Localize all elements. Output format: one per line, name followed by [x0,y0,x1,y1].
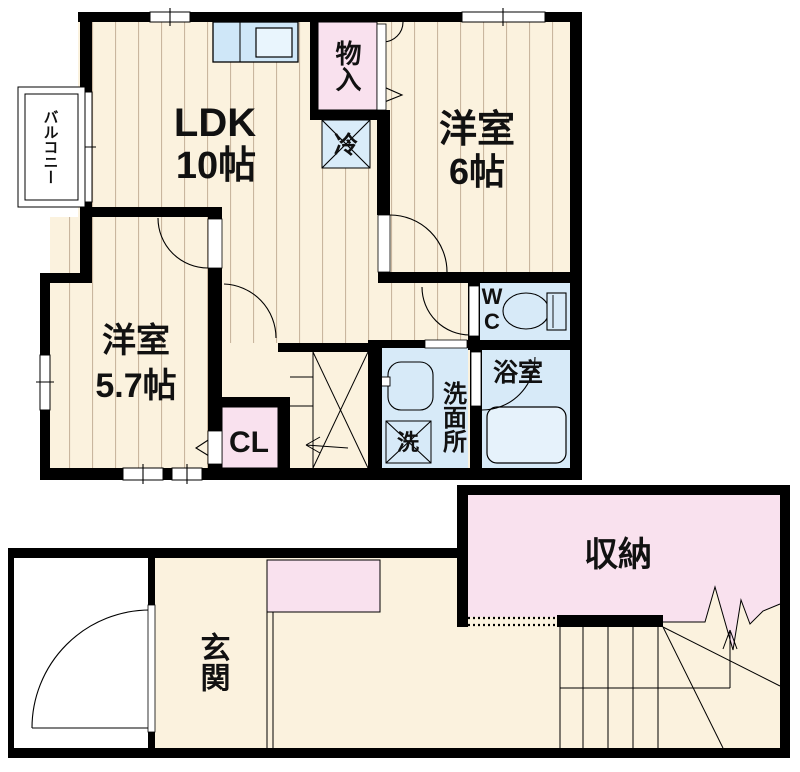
floorplan: LDK 10帖 物入 冷 洋室 6帖 洋室 5.7帖 CL WC 洗面所 洗 浴… [0,0,800,772]
door-bedroom6 [378,215,390,272]
entrance-door-opening [148,605,155,732]
label-wc: WC [480,284,505,334]
entrance-porch [14,558,148,748]
bathtub [487,407,566,463]
first-floor: 玄関 収納 [8,485,790,758]
floorplan-svg: LDK 10帖 物入 冷 洋室 6帖 洋室 5.7帖 CL WC 洗面所 洗 浴… [0,0,800,772]
door-cl [208,431,222,464]
label-bedroom57-size: 5.7帖 [95,367,176,405]
label-bedroom6: 洋室 [439,108,515,151]
label-balcony: バルコニー [42,110,59,185]
door-wc [469,286,479,336]
label-entrance: 玄関 [196,631,230,692]
label-bedroom57: 洋室 [102,321,170,360]
label-ldk: LDK [174,101,256,145]
second-floor: LDK 10帖 物入 冷 洋室 6帖 洋室 5.7帖 CL WC 洗面所 洗 浴… [18,8,582,484]
label-bedroom6-size: 6帖 [449,151,505,192]
door-washroom [425,340,467,348]
door-monoire [377,24,386,110]
label-ldk-size: 10帖 [176,145,256,187]
label-fridge: 冷 [334,131,358,159]
shoe-cabinet [267,560,380,612]
label-bath: 浴室 [493,358,543,387]
label-monoire: 物入 [332,40,362,92]
door-bedroom57 [208,219,222,268]
label-washroom: 洗面所 [439,381,467,454]
door-bath [471,352,481,406]
kitchen-sink [256,28,292,57]
toilet [503,293,566,330]
hall-floor [222,207,378,343]
label-washer: 洗 [397,430,419,455]
label-cl: CL [229,426,269,459]
label-shuno: 収納 [584,536,652,574]
hall-lower-floor [378,283,468,340]
kitchen-counter [213,22,298,62]
